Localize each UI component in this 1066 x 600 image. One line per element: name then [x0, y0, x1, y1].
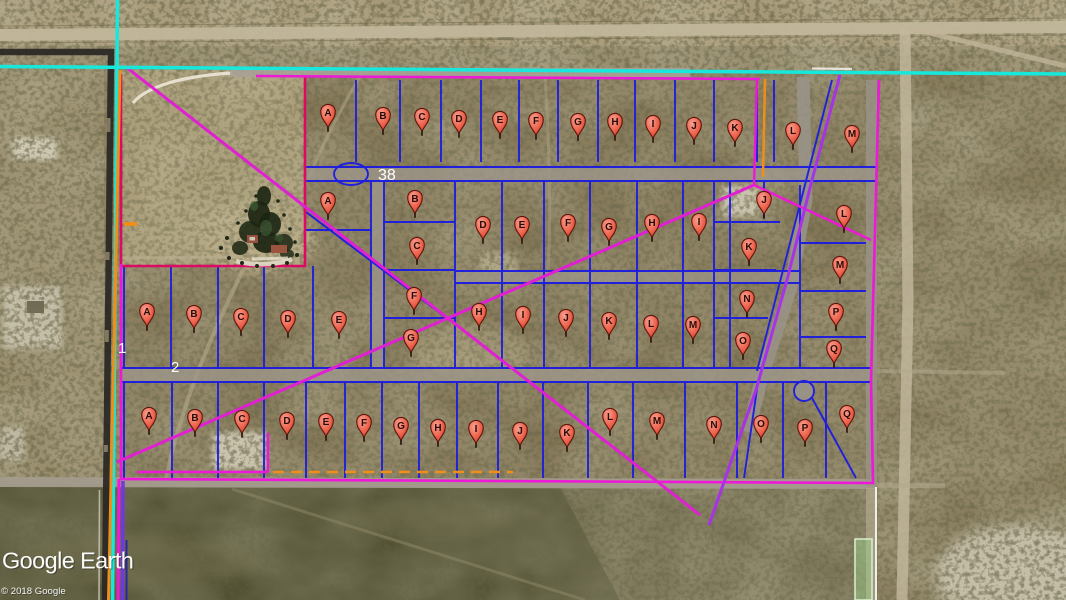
svg-text:N: N	[743, 294, 750, 305]
svg-text:B: B	[191, 413, 198, 424]
svg-text:L: L	[607, 412, 613, 423]
svg-text:M: M	[848, 129, 856, 140]
svg-text:© 2018 Google: © 2018 Google	[1, 586, 66, 597]
svg-text:F: F	[533, 116, 539, 127]
svg-text:K: K	[563, 428, 571, 439]
svg-text:E: E	[336, 315, 343, 326]
svg-text:C: C	[413, 241, 420, 252]
svg-text:Q: Q	[843, 409, 851, 420]
svg-text:I: I	[522, 310, 525, 321]
svg-text:A: A	[143, 307, 150, 318]
svg-text:K: K	[605, 316, 613, 327]
svg-text:B: B	[379, 111, 386, 122]
svg-text:2: 2	[171, 359, 179, 376]
svg-text:A: A	[324, 196, 331, 207]
svg-text:L: L	[648, 319, 654, 330]
svg-text:I: I	[698, 217, 701, 228]
svg-text:C: C	[238, 414, 245, 425]
svg-text:E: E	[497, 115, 504, 126]
svg-text:H: H	[648, 218, 655, 229]
svg-text:F: F	[411, 291, 417, 302]
svg-text:D: D	[283, 416, 290, 427]
svg-text:H: H	[434, 423, 441, 434]
svg-text:A: A	[145, 411, 152, 422]
svg-text:E: E	[323, 417, 330, 428]
svg-text:J: J	[691, 121, 697, 132]
svg-text:G: G	[407, 333, 415, 344]
svg-text:K: K	[745, 242, 753, 253]
svg-text:C: C	[418, 112, 425, 123]
svg-text:P: P	[833, 307, 840, 318]
svg-text:L: L	[841, 209, 847, 220]
svg-text:G: G	[574, 117, 582, 128]
svg-text:H: H	[475, 307, 482, 318]
svg-text:E: E	[519, 220, 526, 231]
svg-text:C: C	[237, 312, 244, 323]
svg-text:I: I	[475, 424, 478, 435]
svg-text:A: A	[324, 108, 331, 119]
svg-text:D: D	[455, 114, 462, 125]
svg-text:O: O	[757, 419, 765, 430]
svg-text:J: J	[761, 195, 767, 206]
svg-text:1: 1	[118, 340, 126, 357]
svg-text:F: F	[361, 418, 367, 429]
svg-text:B: B	[411, 194, 418, 205]
svg-text:F: F	[565, 218, 571, 229]
svg-text:D: D	[479, 220, 486, 231]
svg-text:J: J	[563, 313, 569, 324]
svg-text:P: P	[802, 423, 809, 434]
svg-text:H: H	[611, 117, 618, 128]
svg-text:38: 38	[378, 167, 396, 184]
svg-text:O: O	[739, 336, 747, 347]
svg-text:K: K	[731, 123, 739, 134]
svg-text:M: M	[836, 260, 844, 271]
svg-text:G: G	[397, 421, 405, 432]
svg-text:D: D	[284, 314, 291, 325]
svg-text:L: L	[790, 126, 796, 137]
svg-text:B: B	[190, 309, 197, 320]
svg-text:N: N	[710, 420, 717, 431]
svg-text:I: I	[652, 119, 655, 130]
svg-text:Google Earth: Google Earth	[2, 548, 133, 574]
svg-text:Q: Q	[830, 344, 838, 355]
svg-text:M: M	[653, 416, 661, 427]
svg-text:M: M	[689, 320, 697, 331]
svg-text:G: G	[605, 222, 613, 233]
svg-text:J: J	[517, 426, 523, 437]
